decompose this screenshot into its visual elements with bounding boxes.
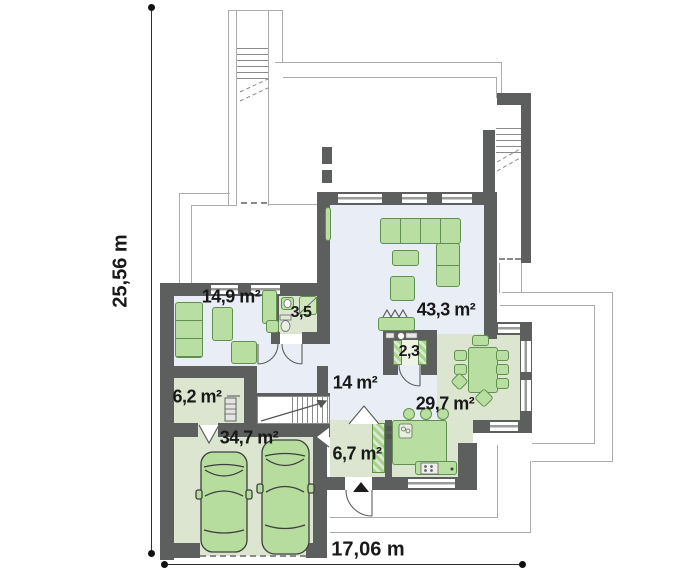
- kitchen-detail: [386, 424, 454, 474]
- car-2: [257, 440, 314, 554]
- room-label-vestibule: 6,7 m²: [332, 444, 381, 465]
- room-label-dining: 29,7 m²: [416, 394, 475, 415]
- floor-plan: 14,9 m² 3,5 43,3 m² 2,3 14 m² 6,2 m² 29,…: [0, 0, 700, 575]
- room-label-living: 43,3 m²: [417, 300, 476, 321]
- dimension-label-vertical: 25,56 m: [110, 234, 133, 307]
- entrance-marker: [353, 482, 369, 492]
- stairs-arrow: [261, 401, 326, 422]
- utility-boiler: [225, 398, 236, 421]
- room-label-bathroom: 3,5: [291, 304, 312, 322]
- fireplace-detail: [383, 310, 417, 340]
- room-label-study: 14,9 m²: [202, 287, 261, 308]
- stair-direction-dashes: [240, 79, 520, 171]
- room-label-hall: 14 m²: [333, 373, 378, 394]
- room-label-garage: 34,7 m²: [220, 428, 279, 449]
- car-1: [196, 452, 252, 552]
- detail-overlay: [0, 0, 700, 575]
- room-label-utility: 6,2 m²: [172, 387, 221, 408]
- dimension-label-horizontal: 17,06 m: [331, 539, 404, 562]
- room-label-pantry: 2,3: [399, 343, 420, 361]
